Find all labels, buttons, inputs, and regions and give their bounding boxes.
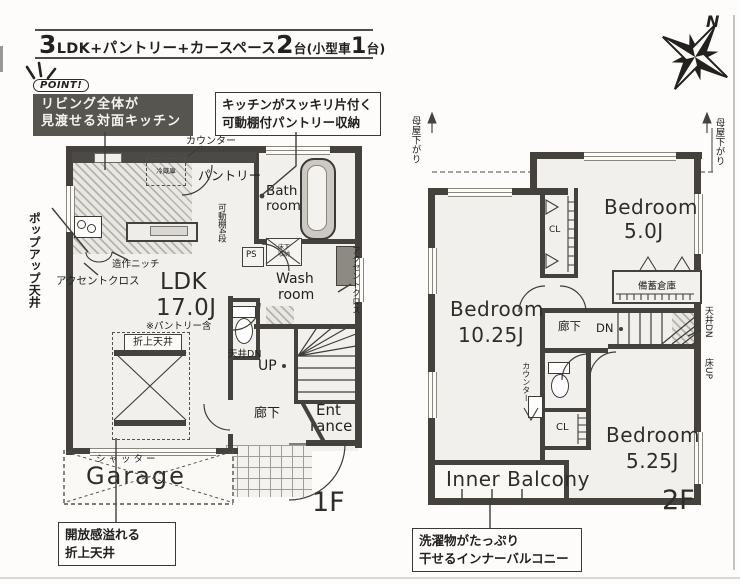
leader-dot — [260, 194, 265, 199]
leader-dot — [619, 327, 623, 331]
compass-icon — [643, 5, 740, 110]
stairs-2f — [618, 313, 699, 347]
leader-dot — [282, 364, 286, 368]
x-marks — [86, 238, 300, 420]
garage-outline — [64, 450, 233, 504]
floorplan-linework — [0, 0, 740, 584]
closet-symbols — [524, 196, 694, 444]
stairs-1f — [298, 326, 356, 392]
leader-lines — [52, 132, 701, 528]
balcony-ticks — [462, 489, 522, 500]
moya-sagari-lines — [428, 113, 713, 172]
slanted-wall — [302, 402, 324, 442]
door-arcs — [182, 165, 616, 500]
floorplan-page: 3 LDK +パントリー+カースペース 2 台 (小型車 1 台) POINT!… — [0, 0, 740, 584]
emphasis-burst-icon — [27, 63, 55, 78]
